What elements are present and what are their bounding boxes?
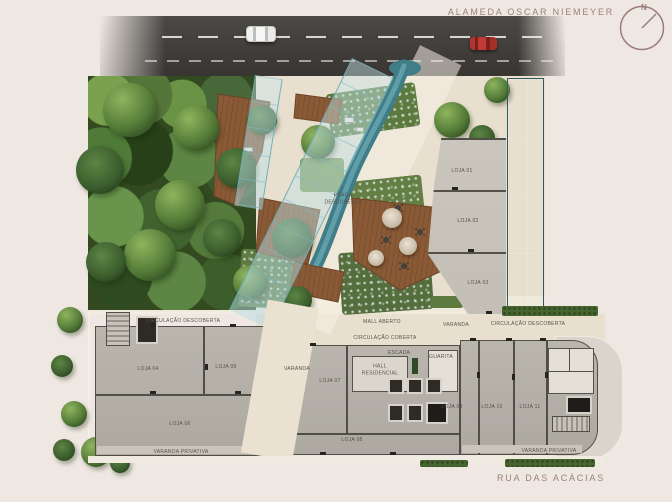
umbrella — [368, 250, 384, 266]
door-mark — [390, 452, 396, 455]
elevator — [388, 404, 404, 422]
elevator — [388, 378, 404, 394]
door-mark — [310, 343, 316, 346]
unit-divider — [428, 252, 506, 254]
elevator — [426, 378, 442, 394]
interior-wall — [549, 371, 593, 372]
palm-tree — [434, 102, 470, 138]
planter — [412, 358, 418, 374]
table-set — [383, 237, 389, 243]
door-mark — [320, 452, 326, 455]
service-core — [548, 348, 594, 394]
interior-wall — [203, 327, 205, 394]
interior-wall — [271, 433, 459, 435]
door-mark — [468, 249, 474, 252]
door-mark — [486, 311, 492, 314]
interior-wall — [478, 341, 480, 454]
stairs — [552, 416, 590, 432]
door-mark — [540, 338, 546, 341]
tree — [103, 83, 157, 137]
door-mark — [235, 391, 241, 394]
table-set — [417, 229, 423, 235]
tree — [155, 180, 205, 230]
table-set — [401, 263, 407, 269]
unit-divider — [428, 190, 506, 192]
street-tree — [51, 355, 73, 377]
door-mark — [506, 338, 512, 341]
elevator — [136, 316, 158, 344]
door-mark — [205, 364, 208, 370]
stairs — [106, 312, 130, 346]
elevator — [407, 378, 423, 394]
elevator-shaft — [566, 396, 592, 414]
elevator — [407, 404, 423, 422]
tree — [173, 105, 219, 151]
street-tree — [57, 307, 83, 333]
door-mark — [477, 372, 480, 378]
reflecting-pool — [507, 78, 544, 308]
door-mark — [512, 374, 515, 380]
door-mark — [150, 391, 156, 394]
door-mark — [470, 338, 476, 341]
umbrella — [399, 237, 417, 255]
tree — [76, 146, 124, 194]
hedge — [420, 460, 468, 467]
site-plan: N ALAMEDA OSCAR NIEMEYER RUA DAS ACÁCIAS — [0, 0, 672, 502]
door-mark — [230, 324, 236, 327]
door-mark — [545, 372, 548, 378]
elevator-shaft — [426, 402, 448, 424]
private-terrace-band — [462, 445, 582, 453]
street-tree — [53, 439, 75, 461]
door-mark — [452, 187, 458, 190]
interior-wall — [96, 394, 269, 396]
umbrella — [382, 208, 402, 228]
interior-wall — [346, 346, 348, 433]
tree — [124, 229, 176, 281]
hedge — [502, 306, 598, 316]
hedge — [505, 459, 595, 467]
tree — [203, 219, 241, 257]
door-mark — [150, 324, 156, 327]
interior-wall — [569, 349, 570, 371]
tree — [86, 242, 126, 282]
interior-wall — [513, 341, 515, 454]
street-tree — [61, 401, 87, 427]
